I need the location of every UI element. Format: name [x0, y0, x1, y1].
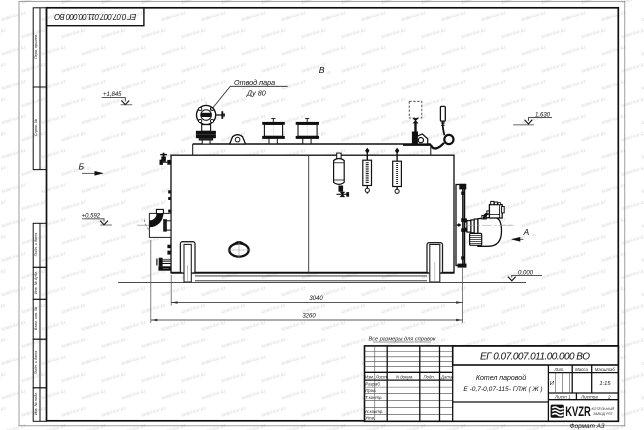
svg-text:Все размеры для справок: Все размеры для справок: [369, 337, 436, 343]
svg-text:Изм.: Изм.: [365, 374, 374, 379]
svg-text:Лист 1: Лист 1: [554, 394, 571, 399]
svg-text:Инв. № подл.: Инв. № подл.: [34, 392, 38, 416]
svg-text:Е -0,7-0,07-115- ГЛЖ ( Ж ): Е -0,7-0,07-115- ГЛЖ ( Ж ): [463, 386, 542, 393]
svg-text:Н.контр.: Н.контр.: [365, 409, 383, 414]
svg-text:Т.контр.: Т.контр.: [365, 395, 382, 400]
svg-text:Масштаб: Масштаб: [595, 367, 616, 372]
svg-text:Лит.: Лит.: [553, 367, 564, 372]
svg-text:Б: Б: [79, 162, 85, 172]
svg-text:Дата: Дата: [440, 374, 453, 379]
svg-text:ЕГ 0.07.007.011.00.000 ВО: ЕГ 0.07.007.011.00.000 ВО: [54, 12, 136, 21]
svg-text:3260: 3260: [302, 313, 316, 319]
svg-text:Справ. №: Справ. №: [34, 119, 38, 136]
svg-text:Разраб.: Разраб.: [365, 382, 381, 387]
svg-text:2: 2: [607, 394, 611, 399]
svg-text:Подп. и дата: Подп. и дата: [34, 233, 38, 257]
svg-text:ЕГ 0.07.007.011.00.000 ВО: ЕГ 0.07.007.011.00.000 ВО: [480, 351, 590, 362]
svg-text:3040: 3040: [309, 296, 323, 302]
svg-text:Взам. инв. №: Взам. инв. №: [34, 307, 38, 330]
svg-text:(2): (2): [327, 70, 331, 74]
svg-text:Подп.: Подп.: [424, 374, 435, 379]
svg-text:Лист: Лист: [375, 374, 387, 379]
svg-text:Утв.: Утв.: [365, 416, 375, 421]
svg-text:1:15: 1:15: [599, 381, 611, 387]
svg-text:ЗАВОД РЗТ: ЗАВОД РЗТ: [593, 412, 613, 416]
svg-text:N докум.: N докум.: [396, 374, 413, 379]
svg-text:Ду 80: Ду 80: [246, 88, 266, 97]
svg-text:Котел паровой: Котел паровой: [476, 374, 526, 382]
svg-text:Формат А3: Формат А3: [570, 423, 605, 430]
svg-text:Перв. примен.: Перв. примен.: [34, 34, 38, 59]
svg-text:(2): (2): [532, 233, 536, 237]
svg-text:Инв. № дубл.: Инв. № дубл.: [34, 271, 38, 294]
svg-text:KVZR: KVZR: [565, 403, 591, 419]
svg-text:Пров.: Пров.: [365, 388, 376, 393]
svg-text:+1,845: +1,845: [103, 92, 122, 98]
svg-text:КОТЕЛЬНЫЙ: КОТЕЛЬНЫЙ: [591, 407, 614, 411]
svg-text:А: А: [523, 227, 530, 237]
svg-text:Листов: Листов: [580, 394, 598, 399]
svg-text:Масса: Масса: [575, 367, 588, 372]
svg-text:(2): (2): [87, 166, 91, 170]
svg-text:Отвод пара: Отвод пара: [234, 78, 275, 87]
svg-text:Подп. и дата: Подп. и дата: [34, 351, 38, 375]
svg-text:В: В: [319, 65, 325, 75]
